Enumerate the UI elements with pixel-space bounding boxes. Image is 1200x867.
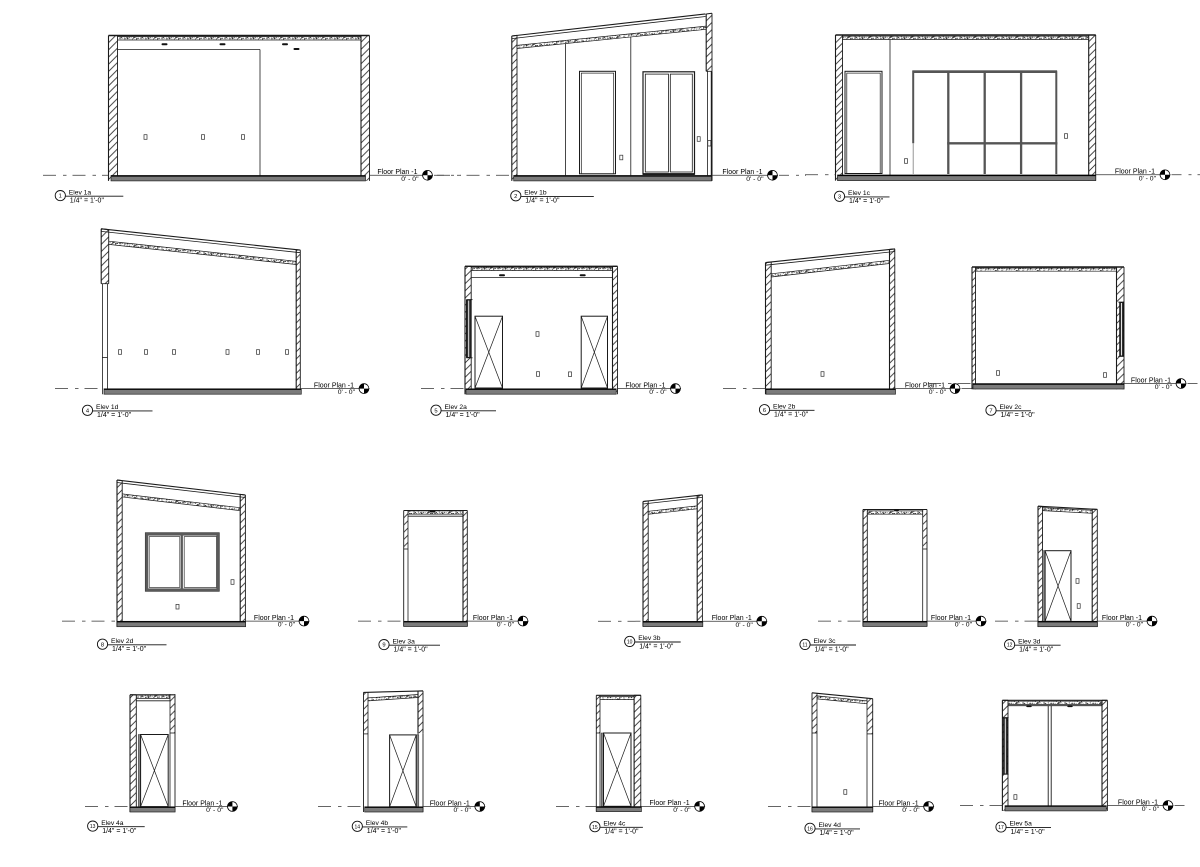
svg-text:5: 5 <box>434 408 437 414</box>
svg-text:Elev 4c: Elev 4c <box>603 820 626 827</box>
svg-text:11: 11 <box>802 643 807 649</box>
svg-text:1/4" = 1'-0": 1/4" = 1'-0" <box>446 412 481 419</box>
svg-text:9: 9 <box>382 643 385 649</box>
svg-text:Elev 4d: Elev 4d <box>819 822 842 829</box>
svg-text:1/4" = 1'-0": 1/4" = 1'-0" <box>1011 829 1046 836</box>
svg-text:1/4" = 1'-0": 1/4" = 1'-0" <box>815 646 850 653</box>
svg-text:0' - 0": 0' - 0" <box>497 622 515 629</box>
svg-text:1/4" = 1'-0": 1/4" = 1'-0" <box>639 643 674 650</box>
svg-text:0' - 0": 0' - 0" <box>929 389 947 396</box>
svg-text:3: 3 <box>838 194 841 200</box>
svg-text:Elev 4a: Elev 4a <box>101 820 124 827</box>
svg-text:14: 14 <box>355 824 361 830</box>
svg-text:Elev 1a: Elev 1a <box>69 189 92 196</box>
svg-text:4: 4 <box>86 408 90 414</box>
svg-text:0' - 0": 0' - 0" <box>673 807 691 814</box>
svg-text:1/4" = 1'-0": 1/4" = 1'-0" <box>849 198 884 205</box>
svg-text:Elev 2d: Elev 2d <box>111 638 134 645</box>
svg-text:1/4" = 1'-0": 1/4" = 1'-0" <box>774 412 809 419</box>
svg-text:Elev 1b: Elev 1b <box>524 190 547 197</box>
svg-text:13: 13 <box>90 824 96 830</box>
svg-text:0' - 0": 0' - 0" <box>746 176 764 183</box>
svg-text:Elev 3d: Elev 3d <box>1018 638 1041 645</box>
svg-text:1/4" = 1'-0": 1/4" = 1'-0" <box>1001 412 1036 419</box>
svg-text:1/4" = 1'-0": 1/4" = 1'-0" <box>820 830 855 837</box>
svg-text:0' - 0": 0' - 0" <box>278 622 296 629</box>
svg-text:Elev 2a: Elev 2a <box>445 404 468 411</box>
svg-text:1/4" = 1'-0": 1/4" = 1'-0" <box>525 198 560 205</box>
svg-text:10: 10 <box>627 640 633 646</box>
svg-text:0' - 0": 0' - 0" <box>955 622 973 629</box>
svg-text:1/4" = 1'-0": 1/4" = 1'-0" <box>97 412 132 419</box>
svg-text:1/4" = 1'-0": 1/4" = 1'-0" <box>102 828 137 835</box>
svg-text:12: 12 <box>1007 643 1013 649</box>
svg-text:0' - 0": 0' - 0" <box>1142 806 1160 813</box>
svg-text:Elev 5a: Elev 5a <box>1010 821 1033 828</box>
svg-text:15: 15 <box>592 825 598 831</box>
svg-text:0' - 0": 0' - 0" <box>401 176 419 183</box>
svg-text:1/4" = 1'-0": 1/4" = 1'-0" <box>70 198 105 205</box>
svg-text:6: 6 <box>763 408 766 414</box>
svg-text:17: 17 <box>998 825 1004 831</box>
svg-text:8: 8 <box>101 642 104 648</box>
svg-text:1/4" = 1'-0": 1/4" = 1'-0" <box>604 829 639 836</box>
svg-text:16: 16 <box>807 826 813 832</box>
svg-text:Elev 3b: Elev 3b <box>638 635 661 642</box>
svg-text:0' - 0": 0' - 0" <box>1139 175 1157 182</box>
svg-text:0' - 0": 0' - 0" <box>453 807 471 814</box>
svg-text:Elev 1d: Elev 1d <box>96 404 119 411</box>
svg-text:0' - 0": 0' - 0" <box>1155 384 1173 391</box>
svg-text:Elev 2c: Elev 2c <box>1000 404 1023 411</box>
svg-text:Elev 1c: Elev 1c <box>848 190 871 197</box>
svg-text:0' - 0": 0' - 0" <box>902 807 920 814</box>
svg-text:1: 1 <box>59 194 62 200</box>
svg-text:1/4" = 1'-0": 1/4" = 1'-0" <box>112 646 147 653</box>
svg-text:1/4" = 1'-0": 1/4" = 1'-0" <box>394 647 429 654</box>
svg-text:0' - 0": 0' - 0" <box>206 807 224 814</box>
svg-text:1/4" = 1'-0": 1/4" = 1'-0" <box>1019 647 1054 654</box>
svg-text:0' - 0": 0' - 0" <box>338 389 356 396</box>
svg-text:7: 7 <box>989 408 992 414</box>
svg-text:1/4" = 1'-0": 1/4" = 1'-0" <box>367 828 402 835</box>
svg-text:Elev 3c: Elev 3c <box>814 638 837 645</box>
svg-text:Elev 3a: Elev 3a <box>393 638 416 645</box>
svg-text:0' - 0": 0' - 0" <box>649 389 667 396</box>
svg-text:0' - 0": 0' - 0" <box>1126 622 1144 629</box>
svg-text:2: 2 <box>514 194 517 200</box>
svg-text:0' - 0": 0' - 0" <box>735 622 753 629</box>
svg-text:Elev 4b: Elev 4b <box>366 820 389 827</box>
svg-text:Elev 2b: Elev 2b <box>773 403 796 410</box>
